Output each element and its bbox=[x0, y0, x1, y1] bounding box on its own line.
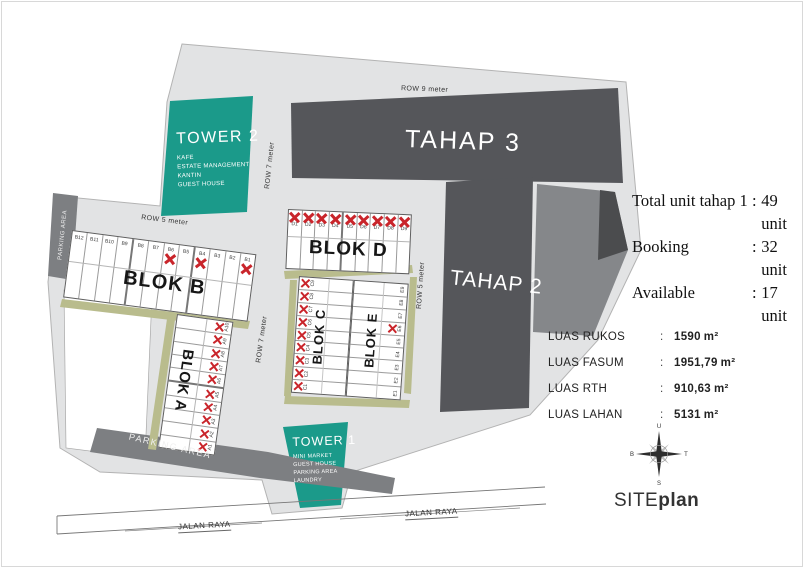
unit-label: B7 bbox=[152, 246, 159, 252]
sold-x-mark bbox=[386, 216, 396, 226]
blok-e: E9E8E7E6E5E4E3E2E1 BLOK E bbox=[346, 280, 409, 401]
unit-label: D9 bbox=[401, 227, 408, 232]
stat-available: Available : 17 unit bbox=[632, 281, 804, 327]
sold-x-mark bbox=[205, 389, 215, 399]
blok-c: C9C8C7C6C5C4C3C2C1 BLOK C bbox=[291, 276, 354, 397]
sold-x-mark bbox=[295, 356, 305, 366]
unit-label: E7 bbox=[399, 313, 404, 319]
unit-label: A10 bbox=[225, 325, 231, 332]
unit-label: B5 bbox=[183, 250, 190, 256]
unit-label: E1 bbox=[393, 390, 398, 396]
unit-label: C2 bbox=[304, 371, 309, 377]
unit-label: E2 bbox=[394, 377, 399, 383]
unit-label: A5 bbox=[215, 392, 221, 399]
sold-x-mark bbox=[299, 291, 309, 301]
tower-2-title: TOWER 2 bbox=[176, 128, 260, 149]
unit-label: E4 bbox=[396, 351, 401, 357]
luas-unit: m² bbox=[714, 383, 729, 395]
blok-d: D1D2D3D4D5D6D7D8D9 BLOK D bbox=[285, 209, 411, 274]
unit-label: A6 bbox=[217, 378, 223, 385]
luas-unit: m² bbox=[704, 409, 719, 421]
unit-label: D7 bbox=[374, 226, 381, 231]
sold-x-mark bbox=[203, 402, 213, 412]
blok-c-e-group: C9C8C7C6C5C4C3C2C1 BLOK C E9E8E7E6E5E4E3… bbox=[291, 276, 409, 400]
sold-x-mark bbox=[372, 216, 382, 226]
luas-rth-row: LUAS RTH : 910,63 m² bbox=[548, 383, 735, 395]
sold-x-mark bbox=[290, 212, 300, 222]
unit-label: D6 bbox=[360, 225, 367, 230]
sold-x-mark bbox=[330, 214, 340, 224]
luas-label: LUAS RTH bbox=[548, 383, 660, 395]
sold-x-mark bbox=[293, 381, 303, 391]
unit-label: C9 bbox=[311, 281, 316, 287]
unit-label: E3 bbox=[395, 364, 400, 370]
unit-label: B9 bbox=[121, 242, 128, 248]
compass-south-label: S bbox=[657, 481, 661, 487]
unit-label: E9 bbox=[401, 287, 406, 293]
unit-label: A2 bbox=[210, 431, 216, 438]
unit-label: B4 bbox=[199, 252, 206, 258]
sold-x-mark bbox=[303, 213, 313, 223]
unit-label: D2 bbox=[305, 223, 312, 228]
tower-1-facilities: MINI MARKET GUEST HOUSE PARKING AREA LAU… bbox=[293, 451, 358, 485]
blok-d-title: BLOK D bbox=[308, 236, 388, 261]
siteplan-logo-part2: plan bbox=[658, 490, 699, 511]
unit-label: A7 bbox=[219, 364, 225, 371]
unit-label: B8 bbox=[137, 244, 144, 250]
stat-booking: Booking : 32 unit bbox=[632, 235, 804, 281]
sold-x-mark bbox=[399, 217, 409, 227]
sold-x-mark bbox=[298, 304, 308, 314]
tower-2-facilities: KAFE ESTATE MANAGEMENT KANTIN GUEST HOUS… bbox=[177, 152, 261, 191]
sold-x-mark bbox=[297, 317, 307, 327]
sold-x-mark bbox=[210, 348, 220, 358]
unit-label: E8 bbox=[400, 300, 405, 306]
unit-label: B12 bbox=[74, 235, 83, 241]
sold-x-mark bbox=[164, 253, 175, 264]
stat-total-units: Total unit tahap 1 : 49 unit bbox=[632, 189, 804, 235]
luas-value: 1951,79 bbox=[674, 357, 718, 369]
tower-1-text: TOWER 1 MINI MARKET GUEST HOUSE PARKING … bbox=[292, 433, 357, 485]
stat-label: Available bbox=[632, 281, 752, 327]
luas-value: 1590 bbox=[674, 331, 701, 343]
unit-label: E5 bbox=[397, 339, 402, 345]
unit-label: D5 bbox=[346, 225, 353, 230]
unit-label: A8 bbox=[221, 351, 227, 358]
luas-value: 5131 bbox=[674, 409, 701, 421]
tahap-3-label: TAHAP 3 bbox=[405, 125, 522, 158]
luas-lahan-row: LUAS LAHAN : 5131 m² bbox=[548, 409, 735, 421]
luas-unit: m² bbox=[721, 357, 736, 369]
sold-x-mark bbox=[296, 343, 306, 353]
unit-label: B6 bbox=[167, 248, 174, 254]
unit-label: B2 bbox=[229, 256, 236, 262]
unit-label: D3 bbox=[318, 223, 325, 228]
unit-cell-C1: C1 bbox=[292, 380, 346, 396]
siteplan-logo: SITEplan bbox=[614, 490, 699, 512]
unit-cell-D9: D9 bbox=[396, 215, 411, 273]
unit-stats-panel: Total unit tahap 1 : 49 unit Booking : 3… bbox=[632, 189, 804, 327]
unit-label: D1 bbox=[291, 222, 298, 227]
luas-label: LUAS LAHAN bbox=[548, 409, 660, 421]
siteplan-canvas: U T S B B12B11B10B9B8B7B6B5B4B3B2B1 BLOK… bbox=[0, 0, 804, 568]
stat-value: 32 unit bbox=[761, 235, 804, 281]
sold-x-mark bbox=[195, 257, 206, 268]
luas-fasum-row: LUAS FASUM : 1951,79 m² bbox=[548, 357, 735, 369]
unit-label: A4 bbox=[213, 405, 219, 412]
unit-label: C8 bbox=[310, 294, 315, 300]
unit-label: B1 bbox=[244, 258, 251, 264]
luas-panel: LUAS RUKOS : 1590 m² LUAS FASUM : 1951,7… bbox=[548, 331, 735, 435]
compass-east-label: T bbox=[684, 452, 688, 458]
tower-2-text: TOWER 2 KAFE ESTATE MANAGEMENT KANTIN GU… bbox=[176, 128, 261, 191]
unit-label: C1 bbox=[304, 384, 309, 390]
siteplan-logo-part1: SITE bbox=[614, 490, 658, 511]
stat-label: Total unit tahap 1 bbox=[632, 189, 752, 235]
luas-rukos-row: LUAS RUKOS : 1590 m² bbox=[548, 331, 735, 343]
unit-label: B10 bbox=[105, 239, 114, 245]
stat-value: 49 unit bbox=[761, 189, 804, 235]
sold-x-mark bbox=[317, 213, 327, 223]
sold-x-mark bbox=[297, 330, 307, 340]
luas-value: 910,63 bbox=[674, 383, 711, 395]
unit-label: D4 bbox=[332, 224, 339, 229]
stat-label: Booking bbox=[632, 235, 752, 281]
unit-label: A3 bbox=[212, 418, 218, 425]
sold-x-mark bbox=[241, 263, 252, 274]
sold-x-mark bbox=[300, 279, 310, 289]
unit-label: B11 bbox=[90, 237, 99, 243]
unit-cell-E1: E1 bbox=[347, 384, 401, 400]
sold-x-mark bbox=[387, 323, 397, 333]
unit-label: A9 bbox=[223, 338, 229, 345]
sold-x-mark bbox=[358, 215, 368, 225]
luas-label: LUAS FASUM bbox=[548, 357, 660, 369]
tower-1-title: TOWER 1 bbox=[292, 433, 356, 449]
unit-label: B3 bbox=[214, 254, 221, 260]
sold-x-mark bbox=[294, 369, 304, 379]
luas-label: LUAS RUKOS bbox=[548, 331, 660, 343]
unit-label: E6 bbox=[398, 326, 403, 332]
sold-x-mark bbox=[345, 215, 355, 225]
compass-west-label: B bbox=[630, 452, 634, 458]
unit-label: D8 bbox=[387, 226, 394, 231]
luas-unit: m² bbox=[704, 331, 719, 343]
stat-value: 17 unit bbox=[761, 281, 804, 327]
